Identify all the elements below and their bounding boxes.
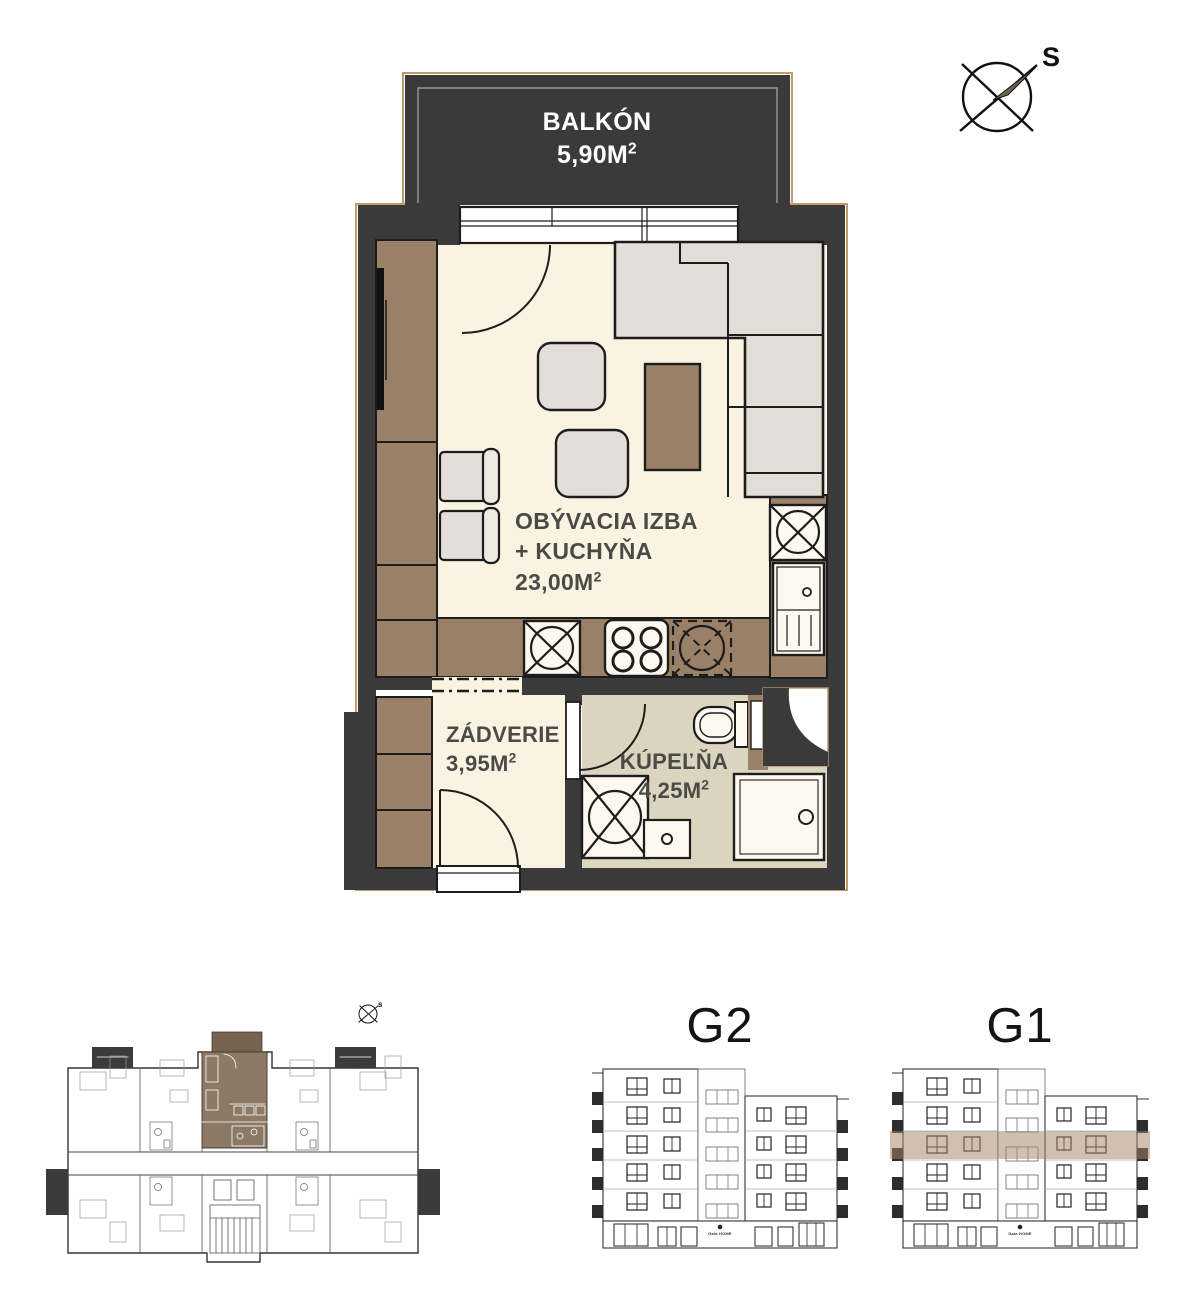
zadverie-name: ZÁDVERIE: [446, 720, 560, 749]
kupelna-area: 4,25M2: [608, 776, 740, 805]
compass-icon: [960, 63, 1037, 131]
elevation-title-g1: G1: [895, 998, 1145, 1054]
stove: [605, 620, 668, 676]
compass-north-label: S: [1042, 42, 1060, 73]
zadverie-area: 3,95M2: [446, 749, 560, 778]
pouf: [538, 343, 605, 410]
architectural-drawing: [0, 0, 1200, 1300]
balkon-name: BALKÓN: [447, 106, 747, 139]
hall-wardrobe: [376, 697, 432, 868]
main-apartment-plan: [344, 73, 847, 892]
living-area: 23,00M2: [515, 567, 698, 597]
developer-logo-g1: Gala HOME: [985, 1231, 1055, 1236]
developer-logo-g2: Gala HOME: [685, 1231, 755, 1236]
coffee-table: [645, 364, 700, 470]
living-name-line2: + KUCHYŇA: [515, 536, 698, 566]
room-label-zadverie: ZÁDVERIE 3,95M2: [446, 720, 560, 778]
elevation-g2: [592, 1069, 849, 1248]
room-label-kupelna: KÚPEĽŇA 4,25M2: [608, 747, 740, 805]
living-name-line1: OBÝVACIA IZBA: [515, 506, 698, 536]
floor-highlight-band: [890, 1131, 1150, 1159]
mini-compass-north-label: s: [378, 1000, 382, 1009]
tv: [377, 268, 384, 410]
balkon-area: 5,90M2: [447, 139, 747, 172]
room-label-living: OBÝVACIA IZBA + KUCHYŇA 23,00M2: [515, 506, 698, 597]
elevation-g1: [890, 1069, 1150, 1248]
counter-sink-right: [770, 505, 826, 560]
mini-floor-plan: [46, 1005, 440, 1262]
wall-cabinets: [376, 240, 437, 677]
mini-compass-icon: [359, 1005, 378, 1023]
passage-opening: [432, 677, 522, 694]
highlighted-unit: [202, 1032, 267, 1148]
shaft-niche: [763, 688, 828, 766]
room-label-balkon: BALKÓN 5,90M2: [447, 106, 747, 172]
elevation-title-g2: G2: [595, 998, 845, 1054]
fridge: [773, 563, 824, 655]
kitchen-sink: [524, 621, 580, 675]
pouf: [556, 430, 628, 497]
kupelna-name: KÚPEĽŇA: [608, 747, 740, 776]
shower: [734, 774, 824, 860]
bathroom-sink: [644, 820, 690, 858]
floor-plan-sheet: BALKÓN 5,90M2 OBÝVACIA IZBA + KUCHYŇA 23…: [0, 0, 1200, 1300]
